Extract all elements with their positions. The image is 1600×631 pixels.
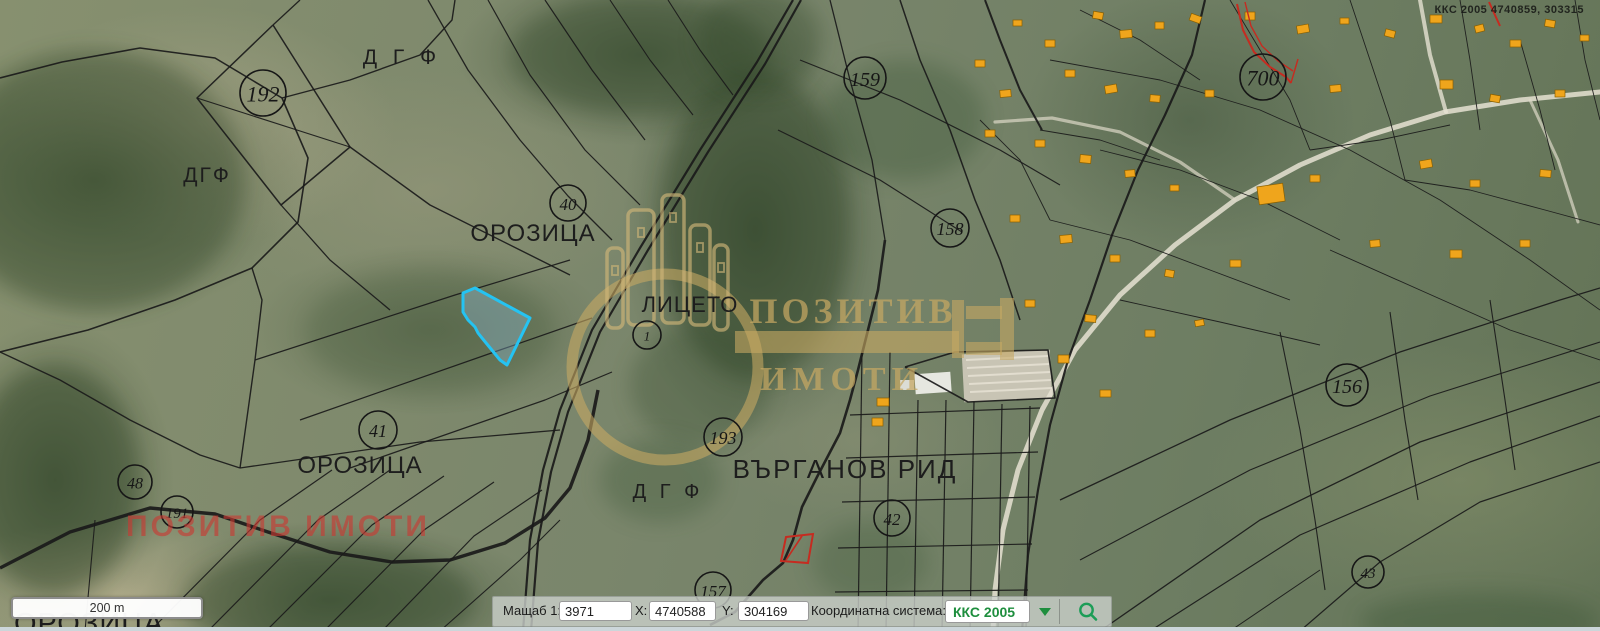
building xyxy=(1450,250,1462,258)
svg-text:1: 1 xyxy=(644,328,651,343)
building xyxy=(1384,29,1395,38)
region-label: ОРОЗИЦА xyxy=(470,220,595,247)
crs-value: ККС 2005 xyxy=(953,604,1015,620)
building xyxy=(1013,20,1022,26)
building xyxy=(1296,24,1309,34)
scale-input[interactable] xyxy=(559,601,632,621)
building xyxy=(1205,90,1214,97)
building xyxy=(1419,159,1432,169)
building xyxy=(1520,240,1530,247)
building xyxy=(1310,175,1320,182)
building xyxy=(1120,29,1133,38)
building xyxy=(872,418,883,426)
parcel-number-circle: 156 xyxy=(1326,364,1368,406)
building xyxy=(1104,84,1117,94)
cursor-coordinate-readout: ККС 2005 4740859, 303315 xyxy=(1435,4,1584,16)
region-label: ЛИЦЕТО xyxy=(642,292,739,317)
scale-label: Мащаб 1: xyxy=(503,603,561,618)
building xyxy=(1035,140,1045,147)
building xyxy=(1470,180,1480,187)
building xyxy=(1164,269,1174,277)
building xyxy=(1080,155,1092,164)
region-label: Д Г Ф xyxy=(363,46,441,69)
map-scale-bar: 200 m xyxy=(11,597,203,619)
building xyxy=(1060,234,1073,243)
y-coordinate-input[interactable] xyxy=(738,601,809,621)
building xyxy=(1150,95,1161,103)
bottom-edge-strip xyxy=(0,627,1600,631)
map-toolbar: Мащаб 1: X: Y: Координатна система: ККС … xyxy=(492,596,1112,627)
y-label: Y: xyxy=(722,603,734,618)
building xyxy=(1110,255,1120,262)
building xyxy=(1430,15,1442,23)
parcel-number-circle: 192 xyxy=(240,70,286,116)
svg-text:159: 159 xyxy=(850,69,880,91)
building xyxy=(1145,330,1155,337)
svg-text:156: 156 xyxy=(1332,376,1362,398)
search-icon xyxy=(1077,601,1099,623)
building xyxy=(1540,170,1552,178)
region-label: ОРОЗИЦА xyxy=(297,452,422,479)
chevron-down-icon[interactable] xyxy=(1039,608,1051,616)
toolbar-divider xyxy=(1059,599,1060,624)
x-coordinate-input[interactable] xyxy=(649,601,716,621)
building xyxy=(1474,24,1485,33)
building xyxy=(1555,90,1565,97)
region-label: Д Г Ф xyxy=(633,481,704,503)
building xyxy=(975,60,985,67)
svg-text:43: 43 xyxy=(1361,566,1376,582)
building xyxy=(1000,90,1012,98)
crs-label: Координатна система: xyxy=(811,603,946,618)
map-canvas[interactable]: ПОЗИТИВ ИМОТИ 19240414819111591587001561… xyxy=(0,0,1600,631)
building xyxy=(1125,170,1136,178)
key-shaft xyxy=(735,331,959,353)
building xyxy=(1245,12,1255,20)
svg-text:158: 158 xyxy=(937,219,964,239)
building xyxy=(1510,40,1521,47)
parcel-number-circle: 40 xyxy=(550,185,586,221)
svg-text:40: 40 xyxy=(560,195,578,214)
x-label: X: xyxy=(635,603,647,618)
svg-text:192: 192 xyxy=(247,82,280,107)
watermark-subtitle: ИМОТИ xyxy=(760,361,924,398)
building xyxy=(1440,80,1453,89)
building xyxy=(1340,18,1349,24)
region-label: ДГФ xyxy=(183,164,231,187)
building xyxy=(1100,390,1111,397)
building xyxy=(1058,355,1069,363)
building xyxy=(1170,185,1179,191)
search-button[interactable] xyxy=(1065,597,1111,626)
building xyxy=(877,398,889,406)
building xyxy=(1155,22,1164,29)
building xyxy=(1195,319,1205,326)
parcel-number-circle: 158 xyxy=(931,209,969,247)
parcel-number-circle: 43 xyxy=(1352,556,1384,588)
building xyxy=(1544,19,1555,28)
building xyxy=(1257,183,1285,204)
building xyxy=(1010,215,1020,222)
building xyxy=(1092,11,1103,20)
parcel-number-circle: 41 xyxy=(359,411,397,449)
svg-text:193: 193 xyxy=(710,428,737,448)
building xyxy=(1189,13,1202,23)
building xyxy=(1489,94,1500,103)
positiv-imoti-watermark-text: ПОЗИТИВ ИМОТИ xyxy=(126,510,430,544)
svg-text:700: 700 xyxy=(1247,66,1280,91)
building xyxy=(1065,70,1075,77)
building xyxy=(1580,35,1589,41)
region-label: ВЪРГАНОВ РИД xyxy=(733,454,958,484)
building xyxy=(1025,300,1035,307)
scale-bar-label: 200 m xyxy=(90,601,125,615)
building xyxy=(985,130,995,137)
crs-select[interactable]: ККС 2005 xyxy=(945,600,1030,623)
watermark-title: ПОЗИТИВ xyxy=(749,291,956,331)
building xyxy=(1045,40,1055,47)
building xyxy=(1330,85,1342,93)
building xyxy=(1085,315,1097,323)
svg-text:41: 41 xyxy=(369,421,387,441)
building xyxy=(1230,260,1241,267)
svg-text:42: 42 xyxy=(884,510,902,529)
building xyxy=(1370,240,1381,248)
svg-text:48: 48 xyxy=(127,475,143,492)
